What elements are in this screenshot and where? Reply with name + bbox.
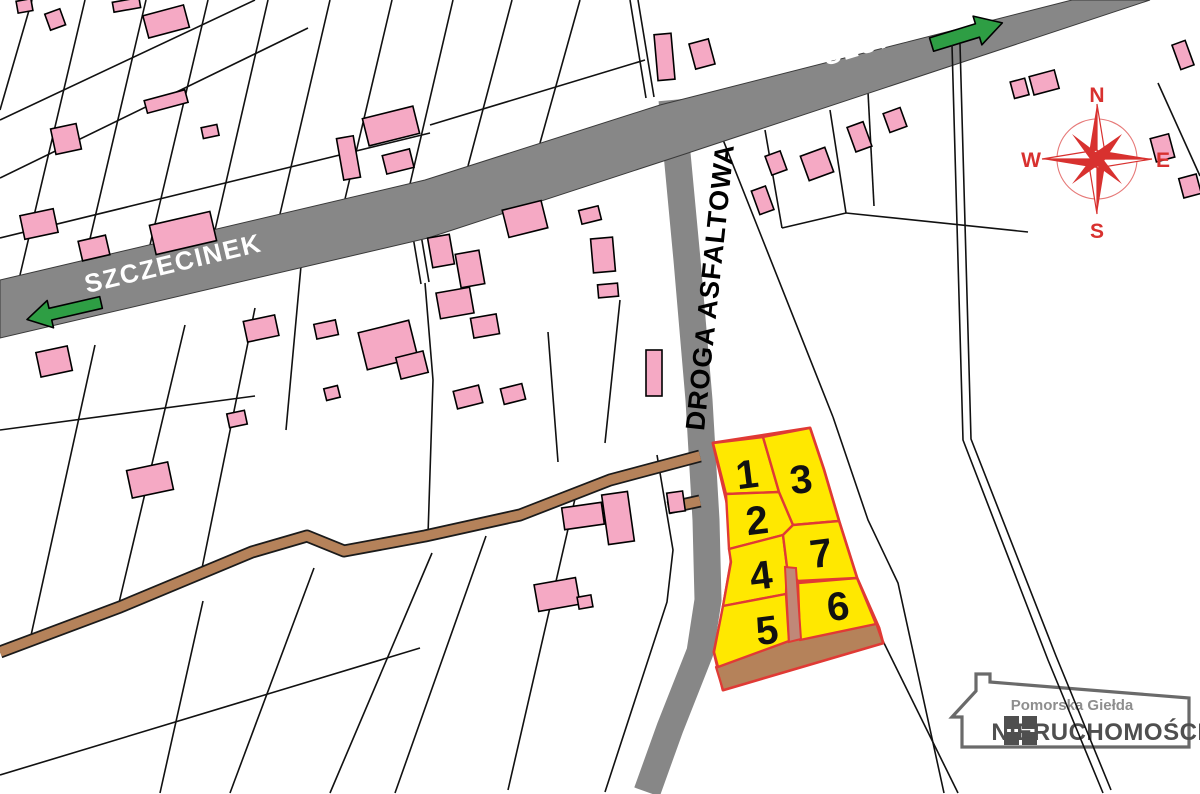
compass-east-label: E	[1156, 149, 1170, 172]
building	[598, 283, 619, 298]
building	[1010, 78, 1029, 98]
compass-south-label: S	[1090, 220, 1104, 243]
building	[436, 287, 474, 319]
compass-west-label: W	[1021, 149, 1041, 172]
building	[562, 502, 605, 529]
building	[201, 124, 219, 138]
building	[667, 491, 686, 513]
cadastral-map: 1 2 3 4 5 6 7 SZCZECINEK SŁUPSK DROGA AS…	[0, 0, 1200, 794]
logo-title: NIERUCHOMOŚCI	[991, 718, 1200, 746]
building	[51, 124, 82, 155]
building	[654, 33, 675, 80]
compass-north-label: N	[1089, 84, 1104, 107]
building	[455, 250, 485, 288]
logo-subtitle: Pomorska Giełda	[1011, 697, 1134, 714]
building	[591, 237, 616, 273]
building	[16, 0, 33, 13]
building	[577, 595, 593, 609]
building	[428, 234, 455, 267]
cadastral-map-page: 1 2 3 4 5 6 7 SZCZECINEK SŁUPSK DROGA AS…	[0, 0, 1200, 794]
building	[470, 314, 499, 338]
building	[227, 410, 248, 427]
building	[324, 385, 340, 400]
building	[646, 350, 662, 396]
